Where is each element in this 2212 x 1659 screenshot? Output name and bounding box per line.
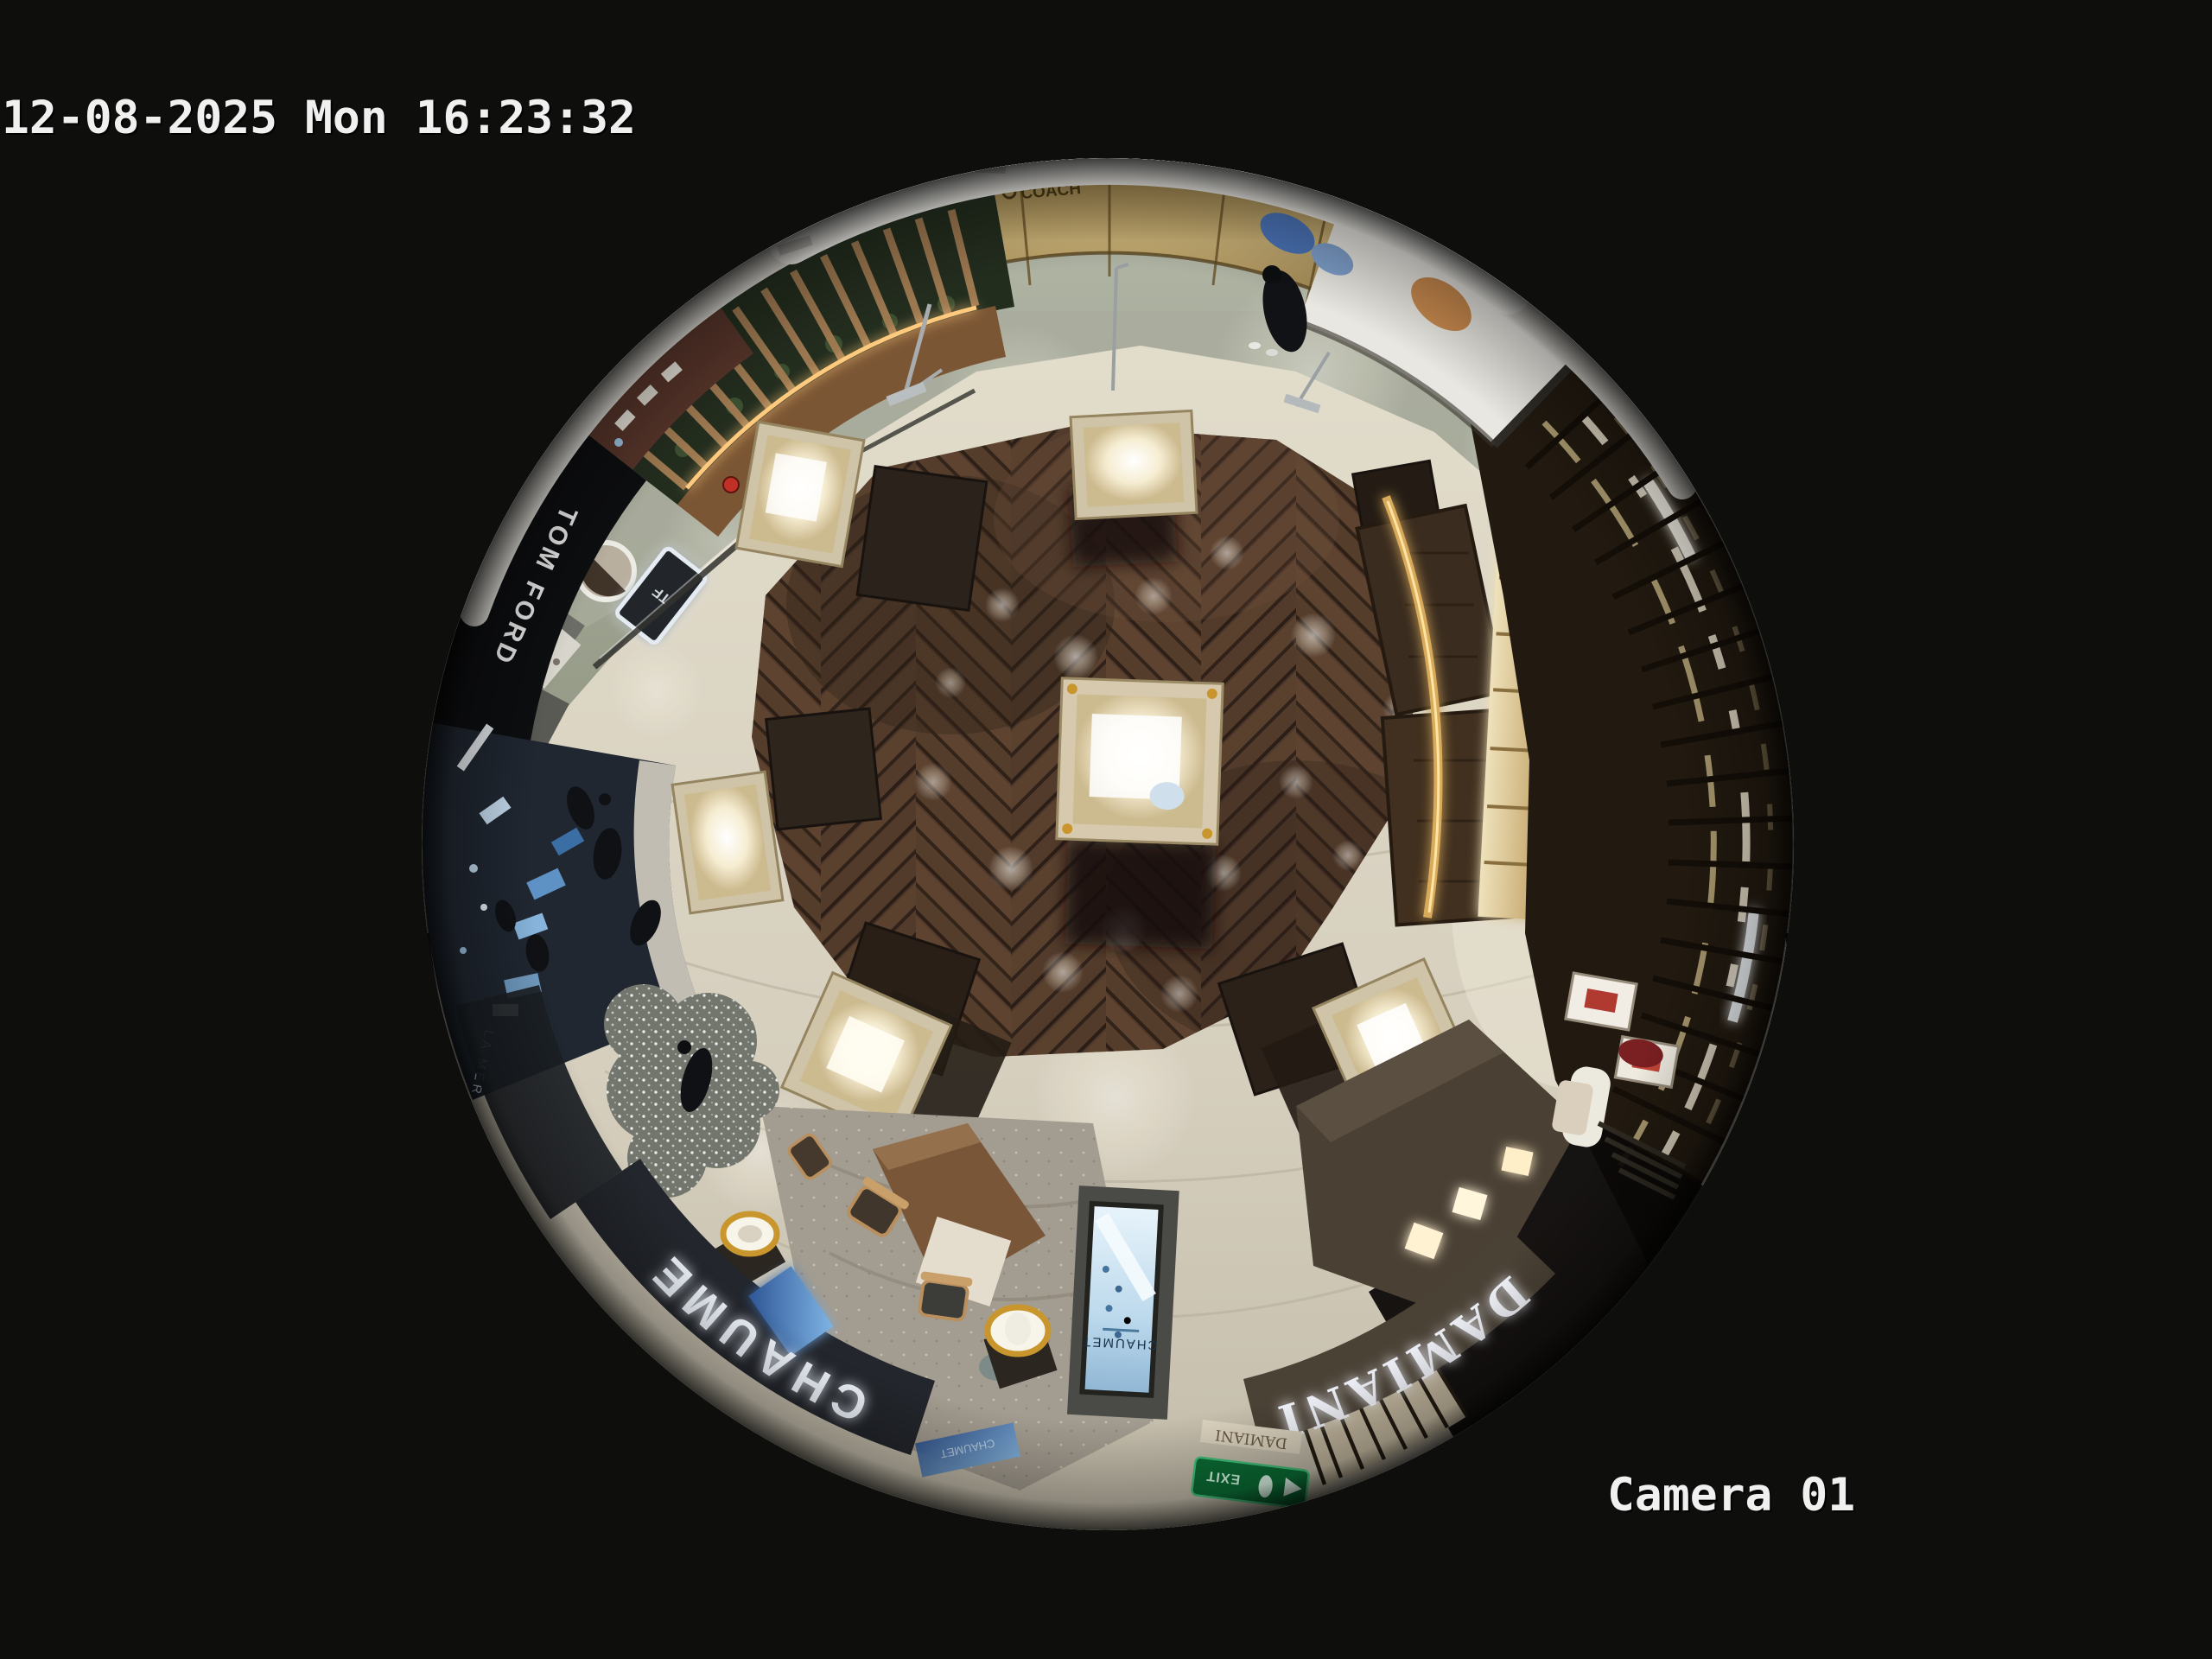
cctv-frame: COACH TF TOM FORD	[0, 0, 2212, 1659]
fisheye-camera-view: COACH TF TOM FORD	[0, 0, 2212, 1659]
osd-timestamp: 12-08-2025 Mon 16:23:32	[2, 92, 636, 144]
osd-camera-label: Camera 01	[1607, 1469, 1855, 1522]
lens-vignette	[422, 158, 1794, 1530]
